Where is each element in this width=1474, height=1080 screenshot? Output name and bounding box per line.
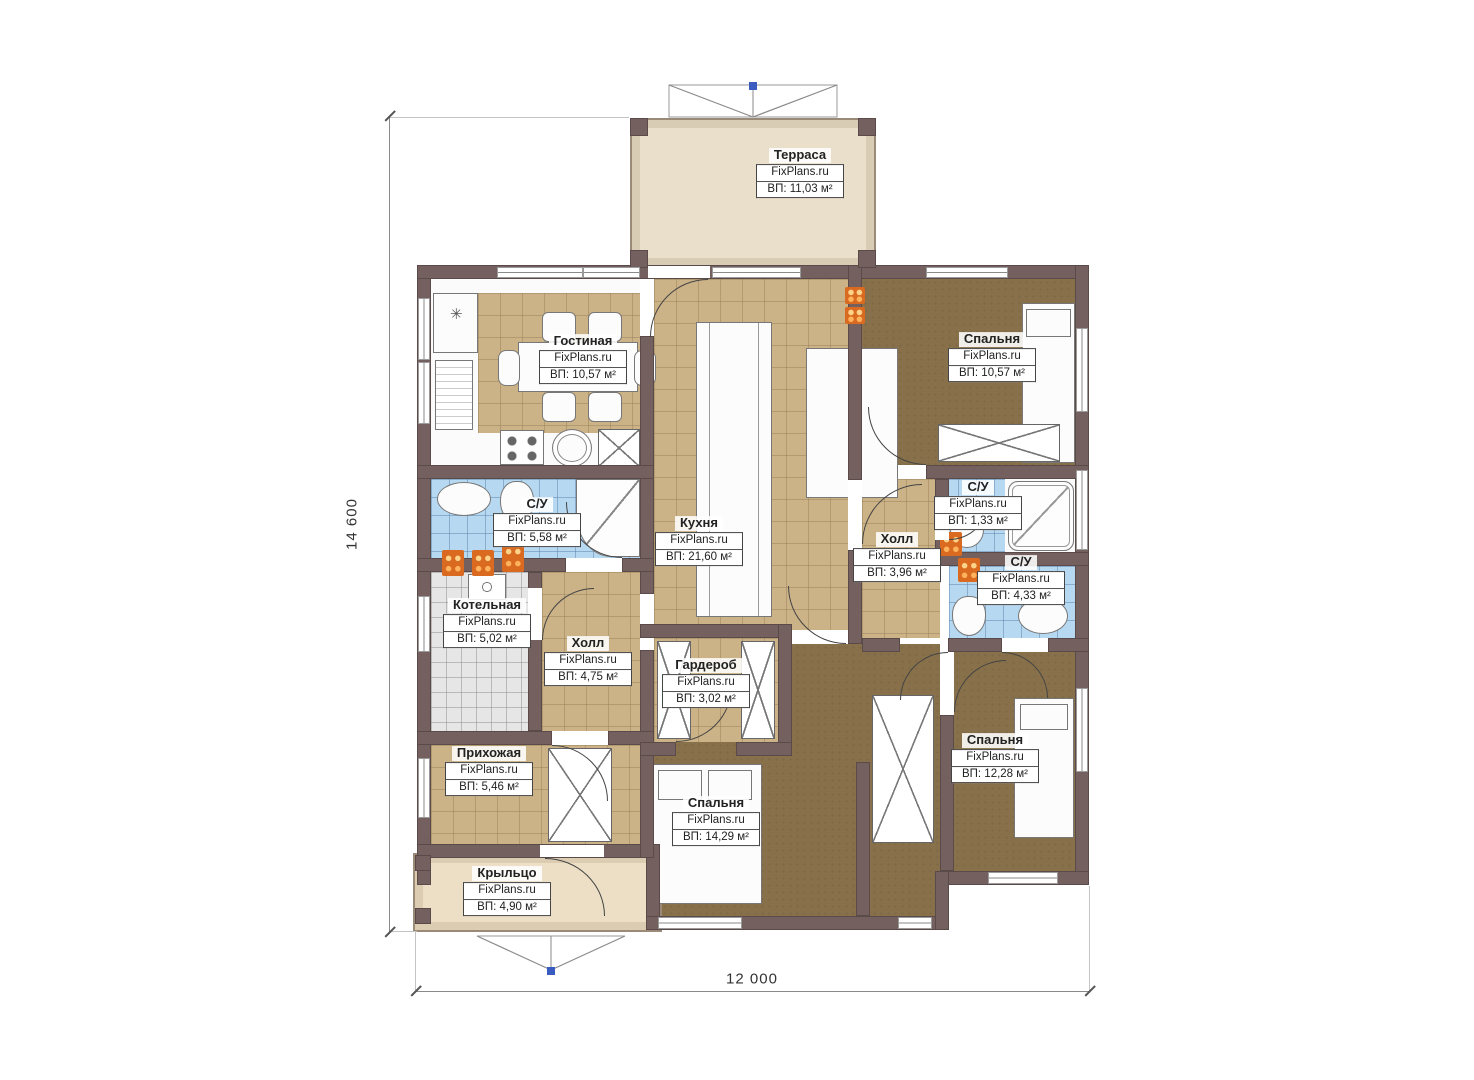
- washbasin-icon: [437, 482, 491, 516]
- terrace-post: [630, 118, 648, 136]
- dimension-line-horizontal: [415, 991, 1090, 992]
- brand-label: FixPlans.ru: [539, 350, 627, 367]
- door-opening: [552, 732, 608, 744]
- extension-line: [389, 931, 417, 932]
- room-area: ВП: 4,90 м²: [463, 900, 551, 916]
- room-label-wardrobe: Гардероб FixPlans.ru ВП: 3,02 м²: [662, 656, 750, 708]
- room-name: С/У: [962, 480, 993, 495]
- wall-segment: [935, 871, 949, 930]
- door-opening: [566, 559, 622, 571]
- room-name: Прихожая: [452, 746, 526, 761]
- window: [1076, 470, 1088, 550]
- radiator-icon: [845, 287, 865, 304]
- room-area: ВП: 21,60 м²: [655, 550, 743, 566]
- room-name: Терраса: [769, 148, 831, 163]
- wall-segment: [778, 624, 792, 756]
- room-name: Гостиная: [549, 334, 618, 349]
- room-label-bathroom-2: С/У FixPlans.ru ВП: 1,33 м²: [934, 478, 1022, 530]
- room-label-bathroom-1: С/У FixPlans.ru ВП: 5,58 м²: [493, 495, 581, 547]
- brand-label: FixPlans.ru: [443, 614, 531, 631]
- extension-line: [415, 932, 416, 992]
- window: [712, 267, 801, 278]
- room-label-living: Гостиная FixPlans.ru ВП: 10,57 м²: [539, 332, 627, 384]
- terrace-post: [630, 250, 648, 268]
- brand-label: FixPlans.ru: [948, 348, 1036, 365]
- room-name: Спальня: [683, 796, 749, 811]
- room-label-bedroom-1: Спальня FixPlans.ru ВП: 10,57 м²: [948, 330, 1036, 382]
- room-label-entry: Прихожая FixPlans.ru ВП: 5,46 м²: [445, 744, 533, 796]
- extension-line: [389, 117, 629, 118]
- room-area: ВП: 11,03 м²: [756, 182, 844, 198]
- brand-label: FixPlans.ru: [951, 749, 1039, 766]
- room-name: Холл: [567, 636, 610, 651]
- room-label-porch: Крыльцо FixPlans.ru ВП: 4,90 м²: [463, 864, 551, 916]
- room-area: ВП: 4,75 м²: [544, 670, 632, 686]
- room-area: ВП: 5,46 м²: [445, 780, 533, 796]
- kitchen-sink-icon: [552, 429, 592, 467]
- wall-segment: [640, 624, 792, 638]
- brand-label: FixPlans.ru: [756, 164, 844, 181]
- room-name: Кухня: [675, 516, 723, 531]
- window: [418, 758, 430, 818]
- room-area: ВП: 12,28 м²: [951, 767, 1039, 783]
- window: [988, 872, 1058, 884]
- room-label-hall-1: Холл FixPlans.ru ВП: 3,96 м²: [853, 530, 941, 582]
- room-label-boiler: Котельная FixPlans.ru ВП: 5,02 м²: [443, 596, 531, 648]
- kitchen-cabinet-icon: [433, 293, 478, 353]
- pillow-icon: [1020, 704, 1068, 730]
- wall-segment: [640, 470, 654, 594]
- window: [418, 362, 430, 424]
- stove-icon: [500, 430, 544, 465]
- room-label-bedroom-2: Спальня FixPlans.ru ВП: 14,29 м²: [672, 794, 760, 846]
- wall-segment: [1048, 638, 1089, 652]
- brand-label: FixPlans.ru: [662, 674, 750, 691]
- brand-label: FixPlans.ru: [934, 496, 1022, 513]
- extension-line: [1089, 886, 1090, 992]
- counter-unit-icon: [598, 429, 640, 467]
- room-area: ВП: 4,33 м²: [977, 589, 1065, 605]
- room-name: С/У: [521, 497, 552, 512]
- porch-post: [415, 855, 431, 871]
- room-label-bedroom-3: Спальня FixPlans.ru ВП: 12,28 м²: [951, 731, 1039, 783]
- wall-segment: [948, 638, 1002, 652]
- wall-segment: [862, 638, 900, 652]
- brand-label: FixPlans.ru: [655, 532, 743, 549]
- wall-segment: [856, 762, 870, 916]
- room-label-bathroom-3: С/У FixPlans.ru ВП: 4,33 м²: [977, 553, 1065, 605]
- wardrobe-icon: [872, 695, 934, 843]
- dimension-tick: [385, 110, 396, 121]
- room-area: ВП: 5,02 м²: [443, 632, 531, 648]
- room-area: ВП: 1,33 м²: [934, 514, 1022, 530]
- window: [418, 596, 430, 652]
- sofa-icon: [696, 322, 772, 617]
- roof-slope-arrow-top: [668, 82, 838, 120]
- dimension-line-vertical: [389, 116, 390, 932]
- marker-icon: [749, 82, 757, 90]
- dimension-height-label: 14 600: [344, 498, 361, 550]
- terrace-post: [858, 250, 876, 268]
- brand-label: FixPlans.ru: [463, 882, 551, 899]
- room-name: Спальня: [962, 733, 1028, 748]
- chair-icon: [498, 350, 520, 386]
- brand-label: FixPlans.ru: [493, 513, 581, 530]
- wall-segment: [926, 465, 1089, 479]
- room-area: ВП: 10,57 м²: [539, 368, 627, 384]
- door-arc: [788, 586, 846, 644]
- radiator-icon: [472, 550, 494, 576]
- room-label-terrace: Терраса FixPlans.ru ВП: 11,03 м²: [756, 146, 844, 198]
- wall-segment: [640, 742, 676, 756]
- door-opening: [648, 266, 710, 278]
- room-area: ВП: 3,02 м²: [662, 692, 750, 708]
- radiator-icon: [845, 307, 865, 324]
- wall-segment: [736, 742, 792, 756]
- room-area: ВП: 10,57 м²: [948, 366, 1036, 382]
- fridge-icon: [435, 360, 473, 430]
- room-name: Гардероб: [670, 658, 741, 673]
- chair-icon: [588, 392, 622, 422]
- room-name: С/У: [1005, 555, 1036, 570]
- room-name: Крыльцо: [472, 866, 541, 881]
- brand-label: FixPlans.ru: [544, 652, 632, 669]
- wall-segment: [417, 465, 654, 479]
- brand-label: FixPlans.ru: [977, 571, 1065, 588]
- room-area: ВП: 3,96 м²: [853, 566, 941, 582]
- window: [418, 298, 430, 360]
- roof-slope-arrow-bottom: [476, 934, 626, 976]
- wall-segment: [640, 336, 654, 470]
- room-name: Спальня: [959, 332, 1025, 347]
- window: [926, 267, 1008, 278]
- window: [898, 917, 932, 929]
- door-opening: [540, 845, 604, 857]
- snowflake-icon: ✳: [450, 305, 463, 323]
- room-name: Холл: [876, 532, 919, 547]
- chair-icon: [542, 392, 576, 422]
- terrace-post: [858, 118, 876, 136]
- room-area: ВП: 5,58 м²: [493, 531, 581, 547]
- window: [1076, 328, 1088, 412]
- window: [1076, 688, 1088, 772]
- wall-segment: [417, 731, 552, 745]
- wall-segment: [622, 558, 654, 572]
- window: [583, 267, 640, 278]
- radiator-icon: [442, 550, 464, 576]
- window: [658, 917, 742, 929]
- brand-label: FixPlans.ru: [445, 762, 533, 779]
- brand-label: FixPlans.ru: [853, 548, 941, 565]
- marker-icon: [547, 967, 555, 975]
- floor-plan: ✳: [0, 0, 1474, 1080]
- wardrobe-icon: [938, 424, 1060, 462]
- porch-post: [415, 908, 431, 924]
- brand-label: FixPlans.ru: [672, 812, 760, 829]
- dimension-width-label: 12 000: [726, 971, 778, 988]
- wall-segment: [417, 844, 660, 858]
- room-name: Котельная: [448, 598, 526, 613]
- room-area: ВП: 14,29 м²: [672, 830, 760, 846]
- room-label-kitchen: Кухня FixPlans.ru ВП: 21,60 м²: [655, 514, 743, 566]
- room-label-hall-2: Холл FixPlans.ru ВП: 4,75 м²: [544, 634, 632, 686]
- window: [497, 267, 583, 278]
